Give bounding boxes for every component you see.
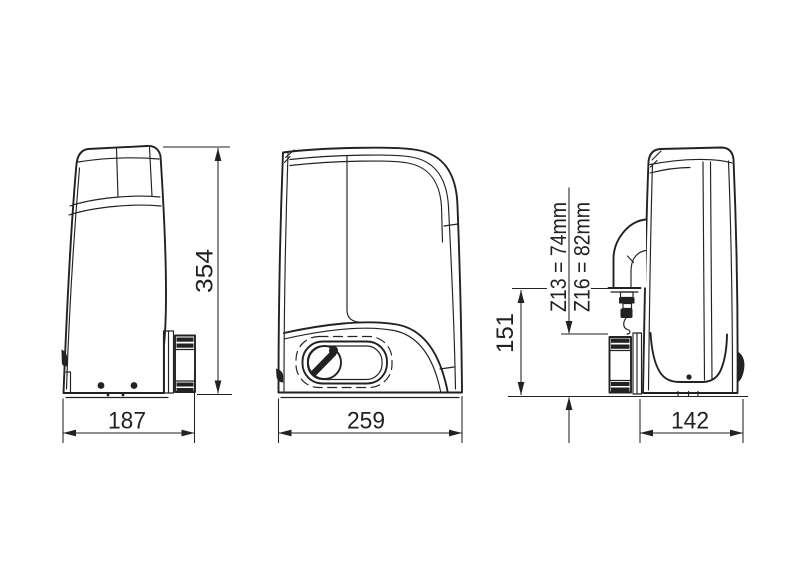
body-outline (643, 148, 738, 394)
dimension-right-view-width: 142 (640, 399, 743, 443)
arrowhead-down (215, 381, 222, 394)
upper-seam-band-2 (69, 205, 161, 215)
pinion-teeth-top-2 (611, 345, 630, 349)
body-outline (279, 148, 463, 393)
cap-seam (78, 158, 159, 162)
release-lever-knob (738, 352, 745, 383)
arrowhead-right (182, 430, 195, 437)
center-seam (347, 156, 358, 322)
dimension-label-151: 151 (492, 313, 519, 353)
dimension-label-259: 259 (347, 408, 385, 435)
pinion-teeth-top-1 (611, 339, 630, 343)
left-side-view (62, 146, 196, 398)
arrowhead-right (730, 430, 743, 437)
gate-operator-dimension-drawing: 354 187 259 142 (0, 0, 785, 576)
center-seam (117, 149, 119, 197)
front-view (276, 148, 462, 398)
base-screw-right (131, 382, 138, 389)
right-side-view (609, 148, 745, 396)
inner-left-edge (284, 154, 288, 392)
technical-drawing-page: 354 187 259 142 (0, 0, 785, 576)
inner-top-line-b (290, 161, 443, 242)
conduit-elbow-fill (614, 220, 647, 288)
pinion-teeth-bottom-2 (611, 388, 630, 392)
cap-seam (650, 159, 732, 164)
pinion-teeth-bottom-1 (611, 382, 630, 386)
dimension-label-z16: Z16 = 82mm (570, 202, 595, 312)
dimension-label-z13: Z13 = 74mm (546, 202, 571, 312)
pinion-teeth-bottom-1 (177, 383, 194, 387)
upper-seam-band-1 (70, 196, 160, 206)
arrowhead-up (566, 397, 573, 410)
arrowhead-up (518, 290, 525, 303)
arrowhead-left (279, 430, 292, 437)
arrowhead-right (449, 430, 462, 437)
base-screw (686, 374, 691, 379)
key-slot (313, 353, 335, 375)
dimension-front-view-width: 259 (279, 396, 463, 443)
panel-seam-1 (703, 162, 705, 380)
inner-right-edge (729, 161, 733, 392)
inner-left-edge (649, 164, 653, 390)
edge-seam-tick-1 (444, 224, 458, 226)
pinion-teeth-top-1 (177, 338, 194, 342)
release-lever-knob (62, 350, 68, 367)
dimension-label-142: 142 (671, 408, 709, 435)
base-screw-left (98, 382, 105, 389)
arrowhead-up (215, 148, 222, 161)
cable-gland-seal-1 (619, 298, 635, 304)
pinion-teeth-bottom-2 (177, 388, 194, 392)
arrowhead-left (63, 430, 76, 437)
pinion-teeth-top-2 (177, 344, 194, 348)
cable-hook (624, 318, 630, 334)
dimension-label-187: 187 (108, 408, 146, 435)
body-outline (64, 146, 167, 393)
arrowhead-down (566, 321, 573, 334)
foot-dot-2 (122, 394, 125, 397)
lock-window-inner (308, 346, 383, 380)
release-lever-knob (276, 369, 283, 383)
key-head-dot (329, 346, 338, 355)
panel-seam-2 (711, 162, 713, 380)
inner-top-line-a (290, 155, 456, 389)
right-seam (150, 148, 153, 197)
cap-seam-partial (650, 168, 690, 174)
arrowhead-left (640, 430, 653, 437)
dimension-label-354: 354 (192, 249, 219, 293)
foot-dot-1 (107, 394, 110, 397)
cable-gland-top (621, 292, 634, 298)
cable-gland-stem (623, 304, 632, 309)
cable-gland-seal-2 (621, 309, 633, 319)
arrowhead-down (518, 382, 525, 395)
